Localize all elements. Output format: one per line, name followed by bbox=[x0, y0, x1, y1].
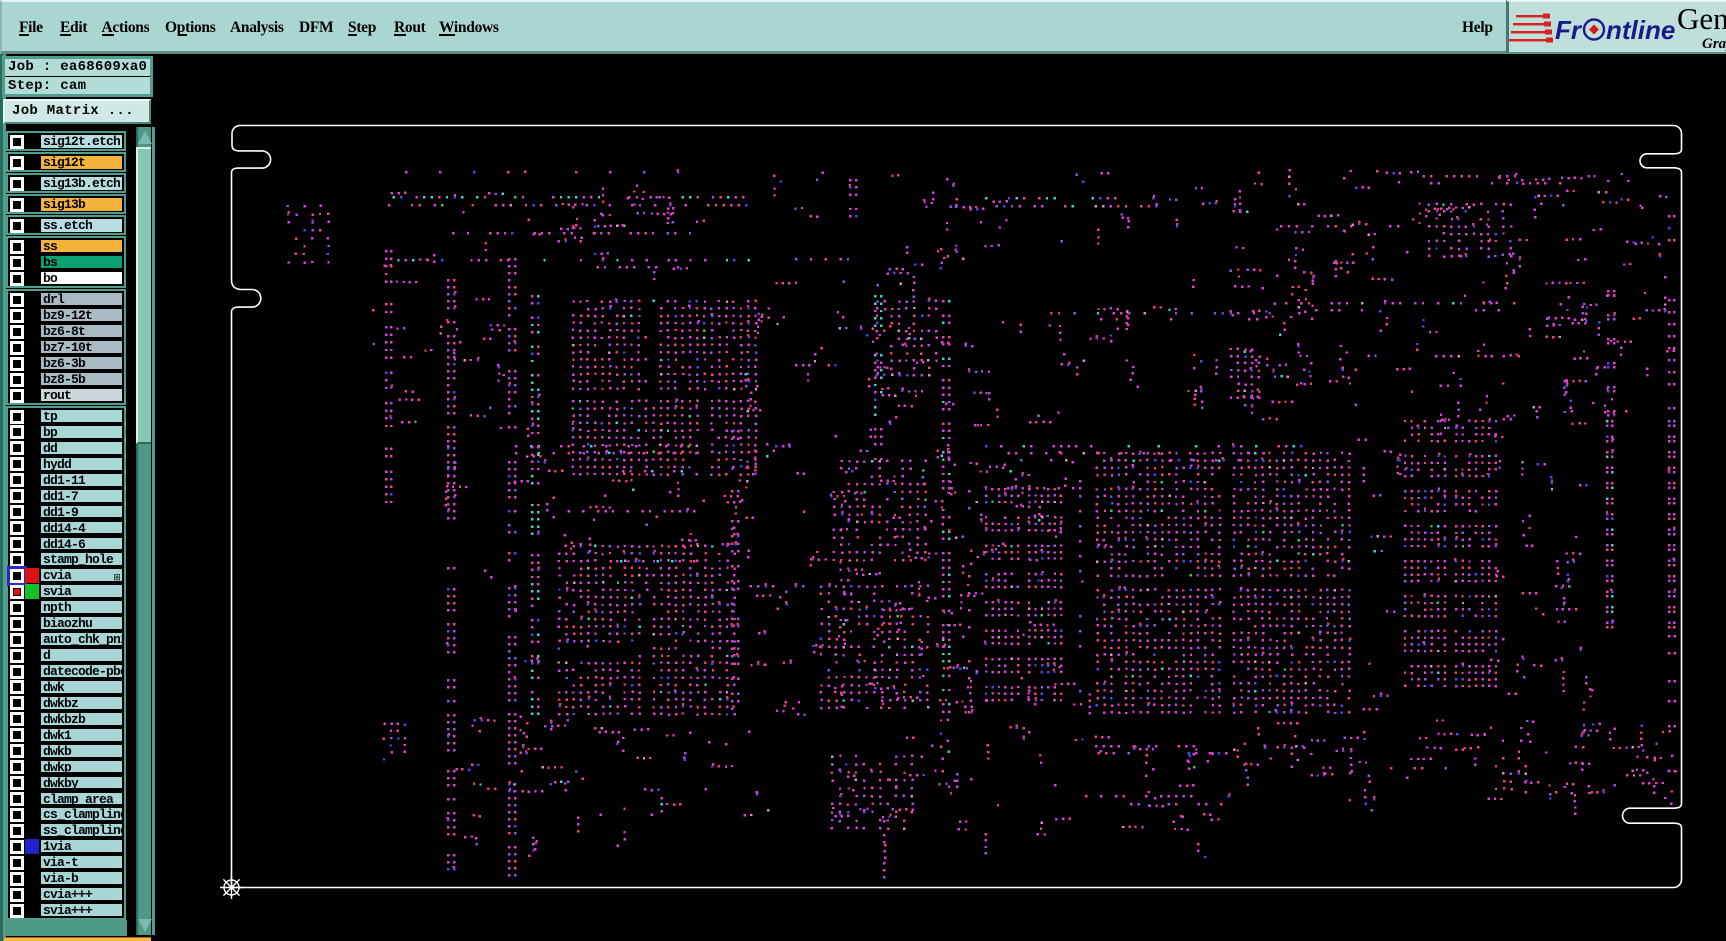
svg-text:Grap: Grap bbox=[1702, 36, 1726, 52]
svg-text:Gene: Gene bbox=[1677, 2, 1726, 36]
svg-text:ntline: ntline bbox=[1606, 15, 1675, 45]
svg-text:Fr: Fr bbox=[1555, 15, 1583, 45]
